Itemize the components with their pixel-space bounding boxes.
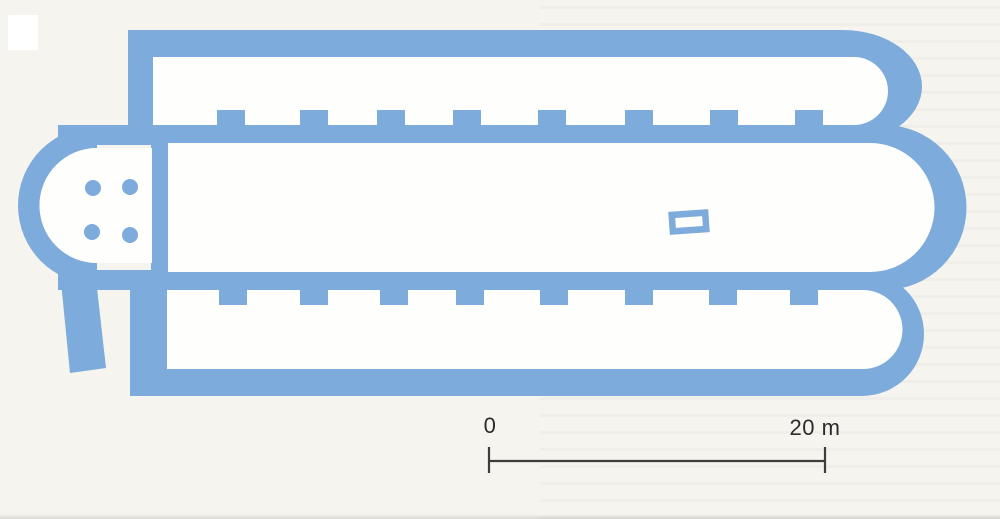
pilaster-top bbox=[377, 110, 405, 126]
scale-bar-end-label: 20 m bbox=[790, 417, 841, 439]
scan-artifact-patch bbox=[8, 15, 38, 50]
pilaster-top bbox=[625, 110, 653, 126]
column-base bbox=[122, 179, 138, 195]
scanned-page: 0 20 m bbox=[0, 0, 1000, 519]
floor-plan-drawing bbox=[0, 0, 1000, 519]
pilaster-bottom bbox=[380, 289, 408, 305]
column-base bbox=[85, 180, 101, 196]
plan-interiors bbox=[40, 57, 935, 369]
pilaster-top bbox=[795, 110, 823, 126]
pilaster-top bbox=[453, 110, 481, 126]
altar-interior bbox=[675, 216, 703, 228]
pilaster-bottom bbox=[625, 289, 653, 305]
scale-bar-start-label: 0 bbox=[484, 415, 497, 437]
page-bottom-edge-shadow bbox=[0, 514, 1000, 519]
nave-interior bbox=[168, 143, 935, 272]
pilaster-top bbox=[538, 110, 566, 126]
west-apse-interior bbox=[40, 148, 153, 263]
column-base bbox=[84, 224, 100, 240]
pilaster-bottom bbox=[790, 289, 818, 305]
north-aisle-interior bbox=[153, 57, 888, 125]
column-base bbox=[122, 227, 138, 243]
pilaster-bottom bbox=[540, 289, 568, 305]
pilaster-bottom bbox=[300, 289, 328, 305]
scale-bar bbox=[489, 447, 825, 473]
pilaster-bottom bbox=[709, 289, 737, 305]
pilaster-bottom bbox=[219, 289, 247, 305]
pilaster-top bbox=[217, 110, 245, 126]
pilaster-top bbox=[300, 110, 328, 126]
pilaster-bottom bbox=[456, 289, 484, 305]
pilaster-top bbox=[710, 110, 738, 126]
altar-group bbox=[668, 209, 710, 235]
